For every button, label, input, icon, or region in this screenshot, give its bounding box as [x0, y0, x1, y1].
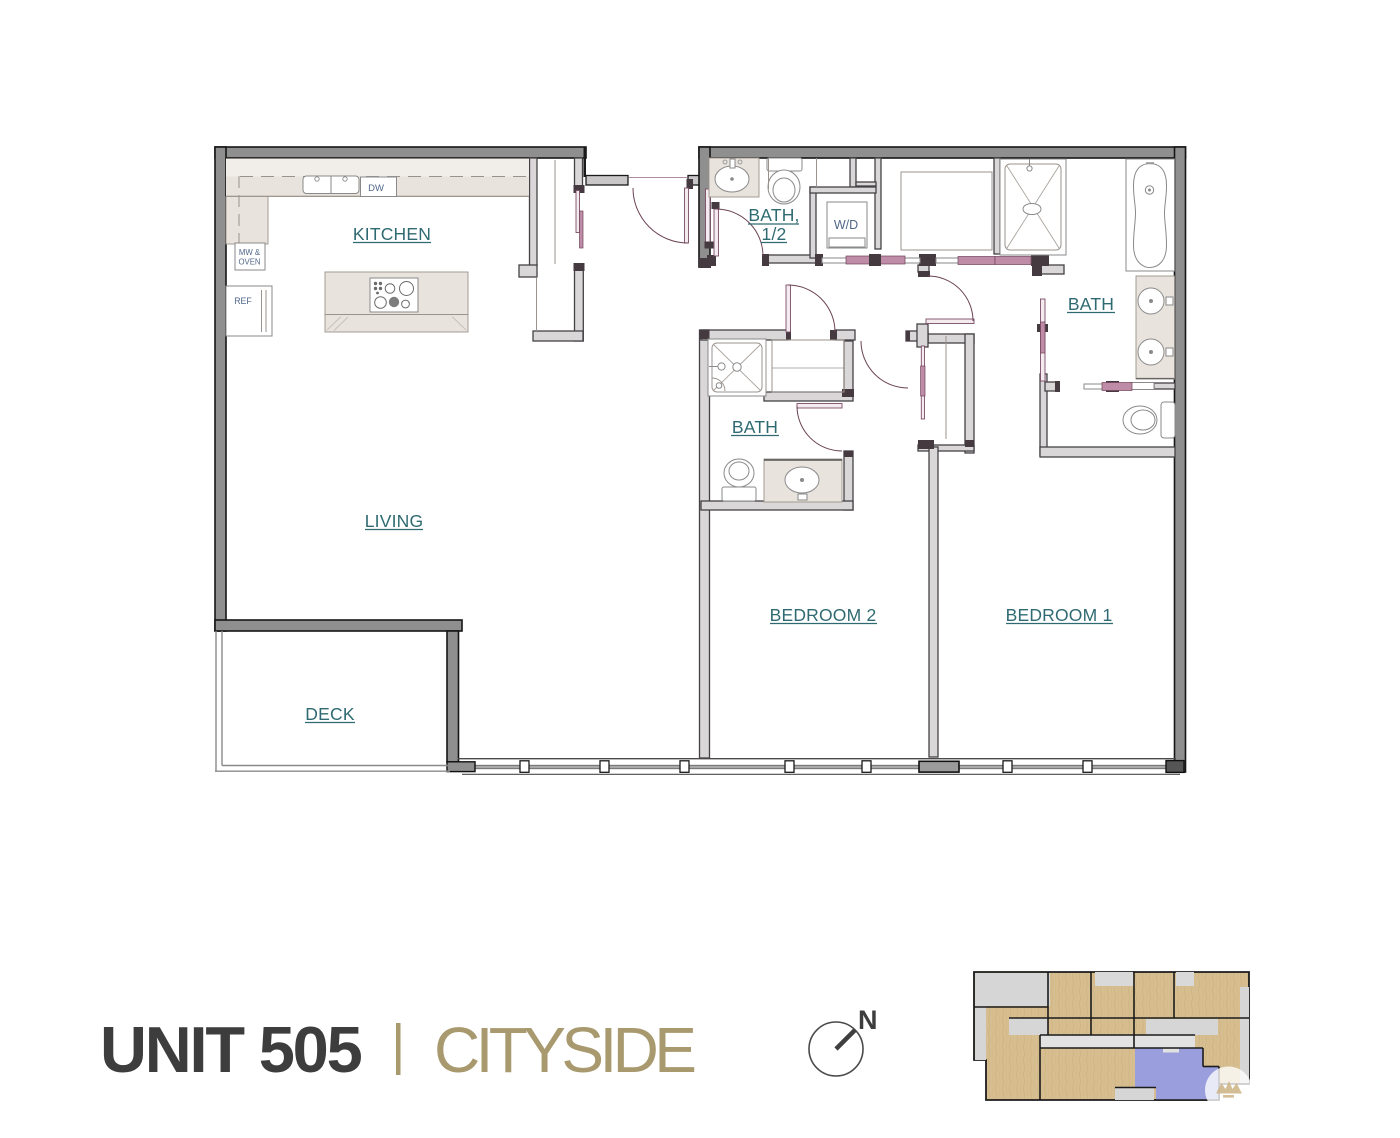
svg-text:LIVING: LIVING — [365, 511, 424, 531]
svg-text:KITCHEN: KITCHEN — [353, 224, 431, 244]
svg-text:BATH: BATH — [1068, 294, 1114, 314]
svg-text:CITYSIDE: CITYSIDE — [434, 1014, 694, 1086]
svg-text:BEDROOM 2: BEDROOM 2 — [770, 605, 877, 625]
svg-text:BATH: BATH — [732, 417, 778, 437]
svg-text:DECK: DECK — [305, 704, 355, 724]
svg-text:UNIT 505: UNIT 505 — [100, 1013, 362, 1086]
svg-text:DW: DW — [368, 183, 384, 194]
svg-text:MW &: MW & — [239, 248, 261, 257]
svg-text:OVEN: OVEN — [238, 258, 260, 267]
svg-text:W/D: W/D — [834, 218, 858, 232]
svg-text:REF: REF — [234, 296, 252, 306]
svg-text:1/2: 1/2 — [762, 224, 787, 244]
svg-text:N: N — [858, 1005, 878, 1035]
svg-text:BEDROOM 1: BEDROOM 1 — [1006, 605, 1113, 625]
svg-text:BATH,: BATH, — [748, 205, 799, 225]
